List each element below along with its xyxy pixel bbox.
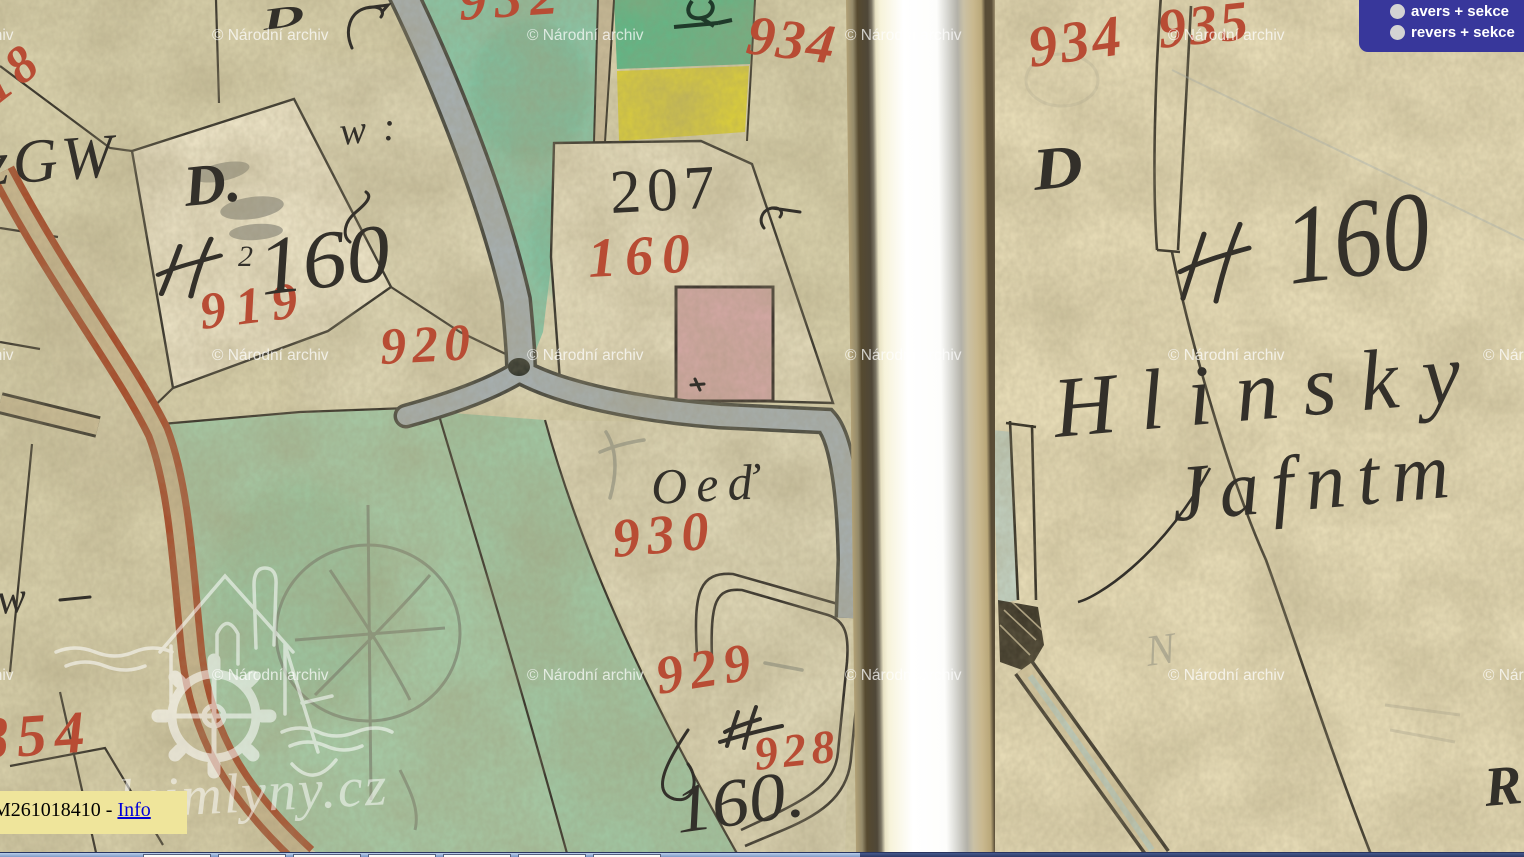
svg-text:© Národní archiv: © Národní archiv (0, 347, 14, 364)
svg-text:Oeď: Oeď (650, 453, 769, 515)
svg-text:160: 160 (1278, 168, 1437, 309)
svg-text:2: 2 (238, 240, 253, 273)
svg-text:854: 854 (0, 698, 95, 772)
svg-text:© Národní archiv: © Národní archiv (1483, 667, 1524, 684)
svg-text:© Národní archiv: © Národní archiv (527, 27, 644, 44)
svg-text:© Národní archiv: © Národní archiv (1168, 667, 1285, 684)
svg-text:160: 160 (586, 222, 700, 290)
svg-text:zGW: zGW (0, 122, 121, 199)
svg-text:w: w (0, 573, 29, 624)
svg-text:© Národní archiv: © Národní archiv (0, 27, 14, 44)
svg-text:© Národní archiv: © Národní archiv (845, 27, 962, 44)
svg-text:920: 920 (379, 314, 478, 376)
svg-text:w:: w: (337, 102, 413, 154)
svg-text:D: D (1028, 132, 1086, 203)
svg-text:© Národní archiv: © Národní archiv (0, 667, 14, 684)
svg-text:© Národní archiv: © Národní archiv (527, 667, 644, 684)
svg-text:207: 207 (608, 153, 722, 227)
svg-text:© Národní archiv: © Národní archiv (1168, 347, 1285, 364)
svg-text:R: R (1481, 754, 1524, 819)
svg-text:© Národní archiv: © Národní archiv (212, 347, 329, 364)
svg-text:© Národní archiv: © Národní archiv (845, 667, 962, 684)
svg-text:© Národní archiv: © Národní archiv (1483, 347, 1524, 364)
svg-text:D.: D. (180, 148, 244, 219)
svg-text:© Národní archiv: © Národní archiv (212, 27, 329, 44)
svg-text:160: 160 (253, 206, 395, 312)
svg-text:© Národní archiv: © Národní archiv (527, 347, 644, 364)
svg-text:© Národní archiv: © Národní archiv (845, 347, 962, 364)
svg-text:934: 934 (743, 4, 840, 77)
svg-text:© Národní archiv: © Národní archiv (1168, 27, 1285, 44)
svg-text:934: 934 (1024, 2, 1128, 80)
